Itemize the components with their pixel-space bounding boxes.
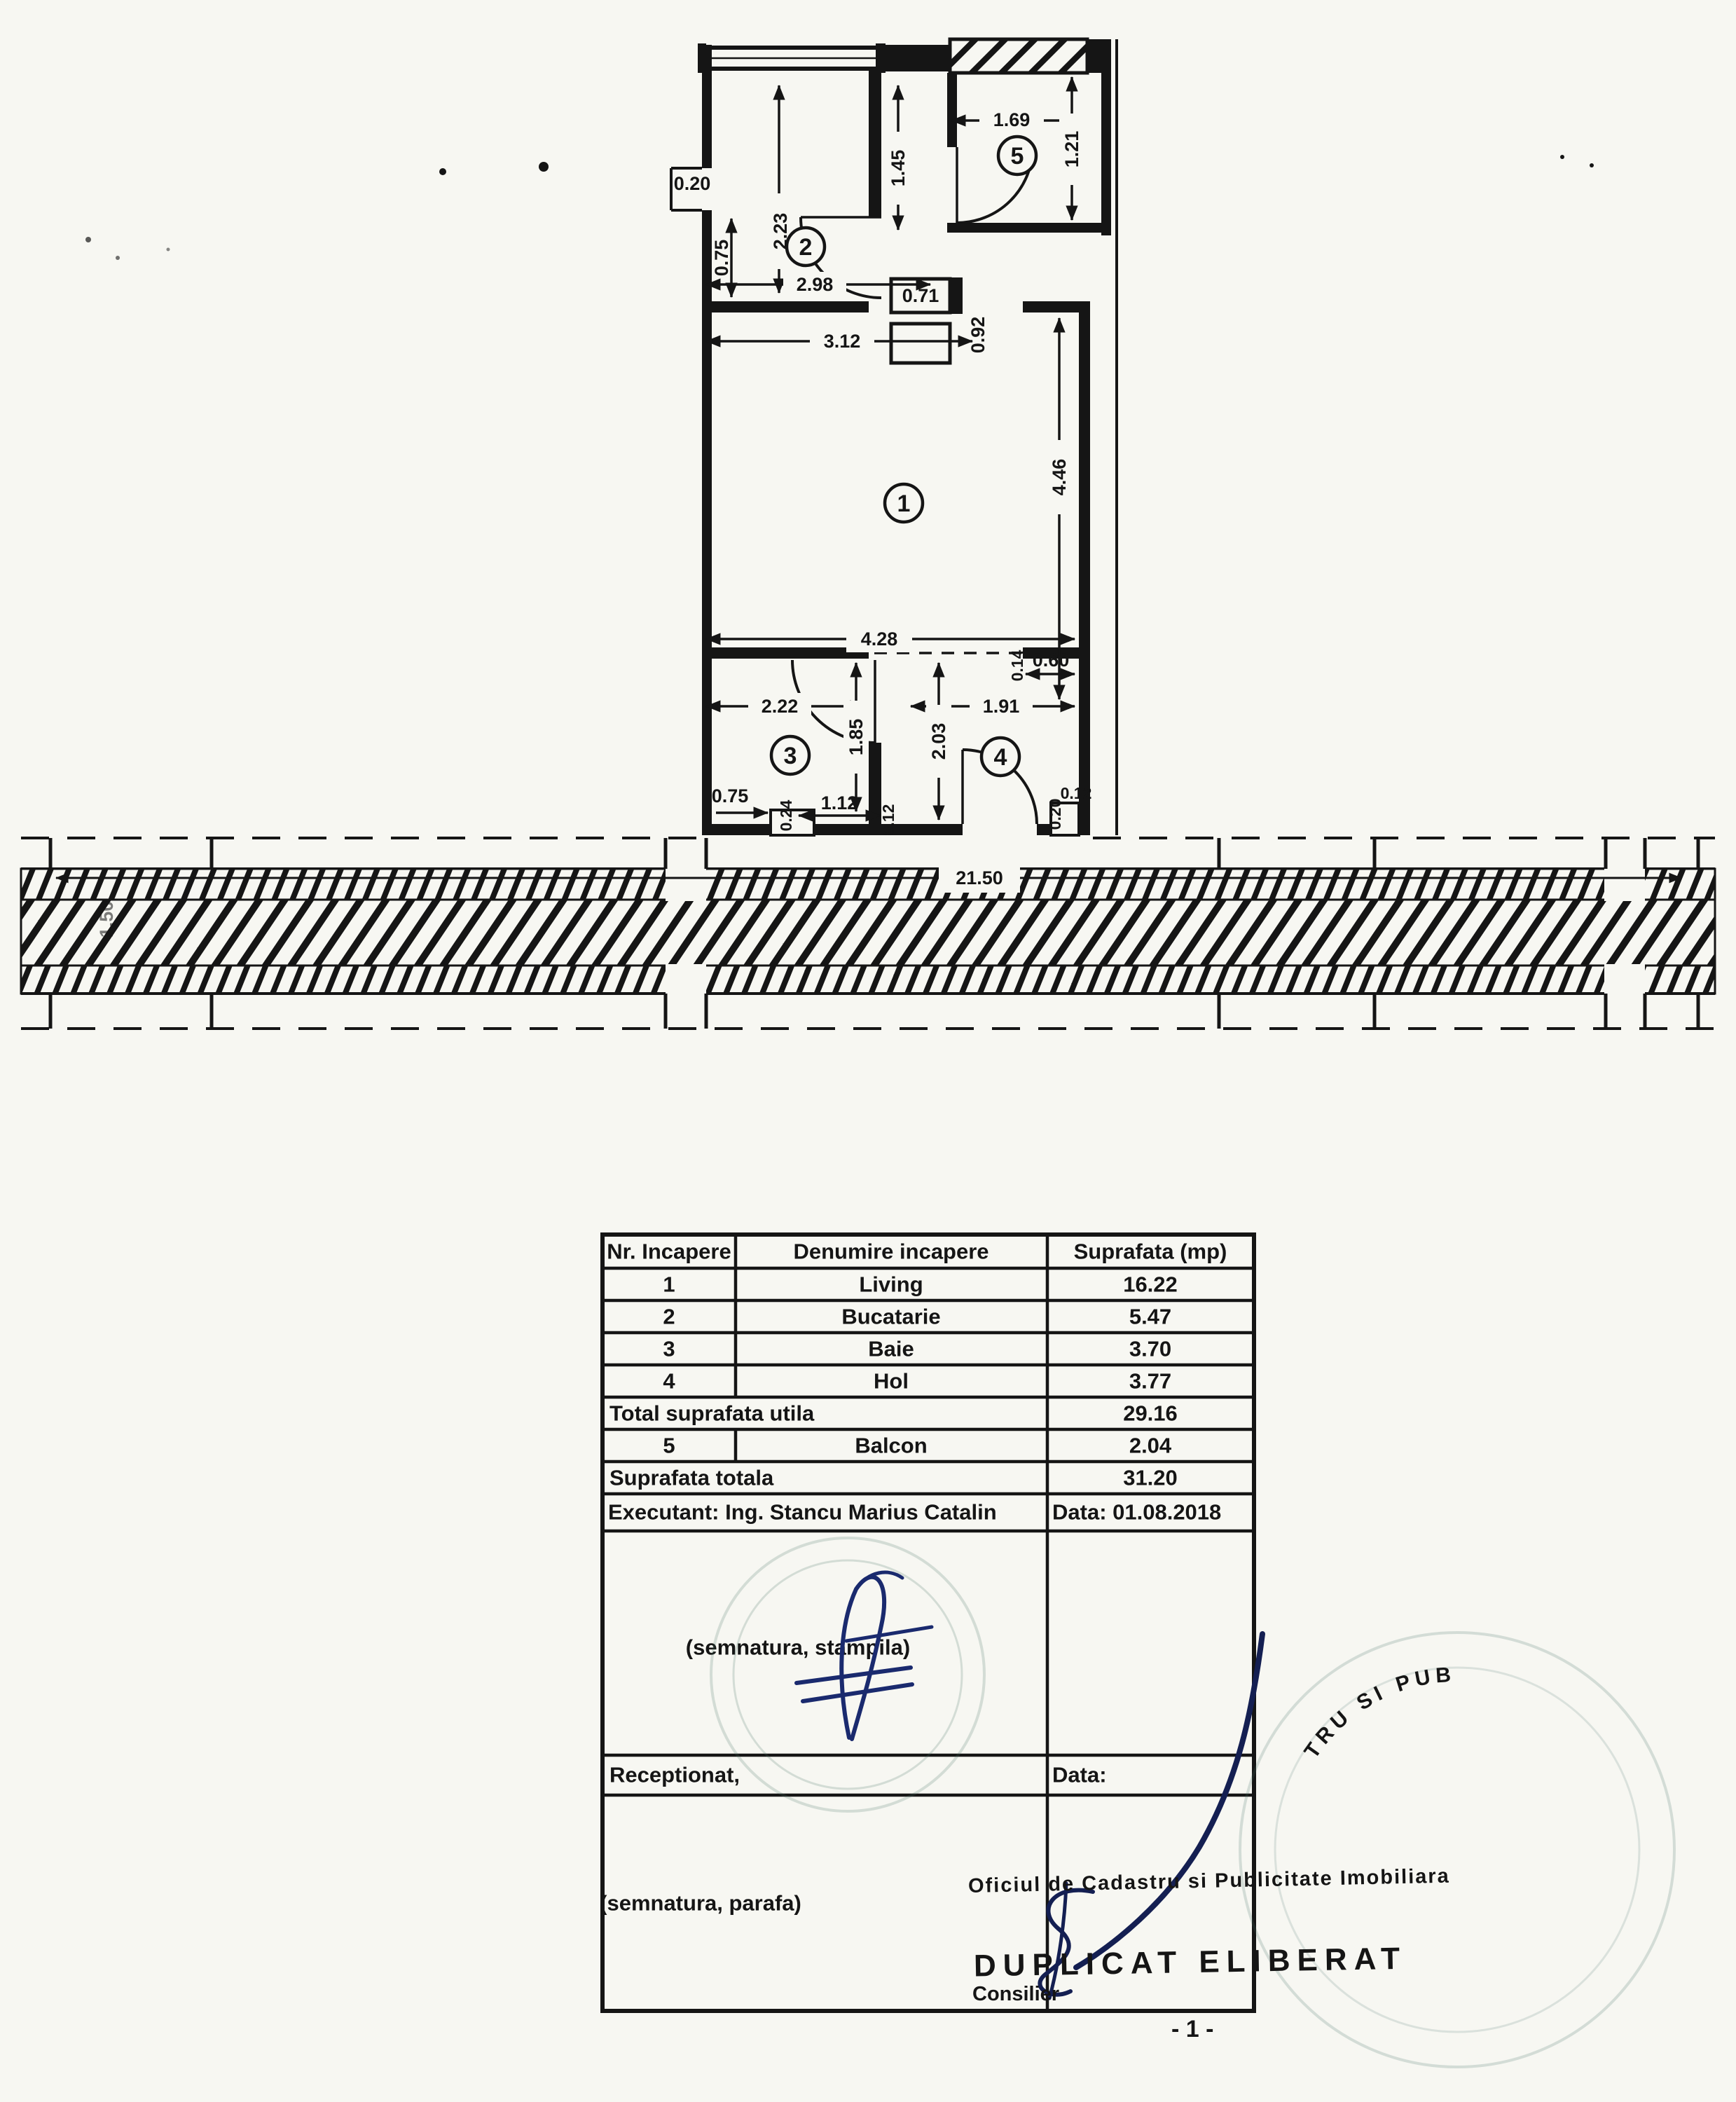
label-backgrounds [748, 107, 1084, 778]
signature-caption-2: (semnatura, parafa) [600, 1891, 801, 1916]
window-symbol [698, 43, 886, 73]
page-note-text: - 1 - [1171, 2016, 1213, 2042]
room-label-hol: 4 [981, 738, 1019, 776]
stamps-and-signatures: TRU SI PUB Oficiul de Cadastru si Public… [711, 1538, 1674, 2067]
room-label-baie: 3 [771, 736, 809, 774]
dim-step: 0.14 [1008, 650, 1026, 681]
dim-bl-a: 0.75 [712, 785, 749, 806]
total-utila-value: 29.16 [1123, 1401, 1178, 1426]
wall-balcony-bottom [947, 223, 1111, 233]
wall-left-lower [702, 301, 712, 835]
svg-text:3.77: 3.77 [1129, 1369, 1171, 1394]
wall-left-upper [702, 45, 712, 168]
dim-br-a: 0.20 [1046, 799, 1064, 830]
hatch-strip-mid [21, 900, 1715, 966]
wall-left-mid [702, 210, 712, 301]
joint-right-bottom [1604, 964, 1645, 995]
svg-text:3: 3 [663, 1337, 675, 1361]
dim-br-b: 0.12 [1061, 784, 1092, 802]
consilier-text: Consilier [972, 1983, 1059, 2005]
dim-b-width: 1.69 [993, 109, 1031, 130]
svg-text:2.04: 2.04 [1129, 1434, 1172, 1458]
dim-bl-b: 0.24 [777, 799, 795, 831]
svg-text:5: 5 [1011, 143, 1024, 170]
total-value: 31.20 [1123, 1466, 1178, 1490]
svg-text:1: 1 [663, 1272, 675, 1297]
table-row: 1 Living 16.22 [663, 1272, 1177, 1297]
hatch-strip-bottom [21, 966, 1715, 994]
table-row: 2 Bucatarie 5.47 [663, 1305, 1171, 1329]
wall-top [881, 45, 950, 71]
dim-hall-h: 1.45 [888, 150, 909, 187]
svg-text:3.70: 3.70 [1129, 1337, 1171, 1361]
signature-receptionat [1040, 1634, 1262, 1998]
jamb-box-2 [891, 324, 950, 363]
dim-baie-h: 1.85 [846, 719, 867, 756]
room-label-balcon: 5 [998, 137, 1036, 174]
corridor-section: 21.50 1.50 [21, 838, 1715, 1029]
svg-text:4: 4 [663, 1369, 675, 1394]
svg-text:Living: Living [859, 1272, 923, 1297]
joint-left-top [666, 867, 706, 901]
dim-l-height: 4.46 [1049, 459, 1070, 496]
scan-specks [85, 155, 1594, 260]
wall-balcony-right [1101, 39, 1111, 235]
svg-text:3: 3 [784, 743, 797, 769]
wall-living-top-left [702, 301, 869, 312]
wall-living-bottom-left [702, 647, 869, 659]
dim-baie-w: 2.22 [762, 696, 799, 717]
duplicat-text: DUPLICAT ELIBERAT [974, 1942, 1407, 1984]
table-row: 3 Baie 3.70 [663, 1337, 1171, 1361]
svg-text:5.47: 5.47 [1129, 1305, 1171, 1329]
dim-hol-h: 2.03 [928, 723, 949, 760]
dim-k-width: 2.98 [797, 274, 834, 295]
dim-k-left: 0.75 [711, 240, 732, 277]
dim-l-width: 4.28 [861, 628, 898, 650]
room-label-bucatarie: 2 [787, 228, 825, 266]
svg-text:Baie: Baie [868, 1337, 914, 1361]
svg-text:4: 4 [994, 744, 1007, 771]
table-row: 4 Hol 3.77 [663, 1369, 1171, 1394]
svg-text:5: 5 [663, 1434, 675, 1458]
receptionat-label: Receptionat, [609, 1763, 740, 1787]
data2-label: Data: [1052, 1763, 1107, 1787]
joint-right-top [1604, 867, 1645, 901]
svg-text:1: 1 [897, 490, 911, 517]
wall-living-right [1079, 301, 1090, 835]
svg-text:2: 2 [799, 234, 813, 261]
total-utila-label: Total suprafata utila [609, 1401, 815, 1426]
dim-b-height: 1.21 [1061, 131, 1082, 168]
date-label: Data: 01.08.2018 [1052, 1500, 1221, 1525]
wall-bottom-left [702, 824, 963, 835]
office-line-text: Oficiul de Cadastru si Publicitate Imobi… [968, 1865, 1450, 1897]
document-canvas: 0.20 0.75 2.23 1.45 2.98 0.71 0.92 1.69 … [0, 0, 1736, 2102]
balcony-parapet-hatch [950, 39, 1087, 73]
dim-corridor-length: 21.50 [956, 867, 1003, 888]
dim-hol-w: 1.91 [983, 696, 1020, 717]
svg-text:Hol: Hol [874, 1369, 909, 1394]
scanned-page: 0.20 0.75 2.23 1.45 2.98 0.71 0.92 1.69 … [0, 0, 1736, 2102]
executant-label: Executant: Ing. Stancu Marius Catalin [608, 1500, 997, 1525]
table-row: 5 Balcon 2.04 [663, 1434, 1172, 1458]
wall-kitchen-right [869, 69, 881, 217]
dim-corridor-width: 1.50 [96, 901, 117, 938]
col-header-denumire: Denumire incapere [793, 1239, 988, 1264]
svg-text:16.22: 16.22 [1123, 1272, 1178, 1297]
schedule-table: Nr. Incapere Denumire incapere Suprafata… [600, 1235, 1254, 2011]
dimension-labels: 0.20 0.75 2.23 1.45 2.98 0.71 0.92 1.69 … [674, 109, 1092, 835]
hatch-strip-top [21, 869, 1715, 900]
dim-jamb: 0.71 [902, 285, 939, 306]
total-label: Suprafata totala [609, 1466, 774, 1490]
col-header-suprafata: Suprafata (mp) [1074, 1239, 1227, 1264]
svg-text:2: 2 [663, 1305, 675, 1329]
dim-l-top: 3.12 [824, 331, 861, 352]
svg-text:Bucatarie: Bucatarie [841, 1305, 940, 1329]
col-header-nr: Nr. Incapere [607, 1239, 731, 1264]
stamp-office-round: TRU SI PUB [1240, 1633, 1674, 2067]
dim-k-notch: 0.20 [674, 173, 711, 194]
dim-balc-door: 0.92 [967, 317, 988, 354]
joint-left-bottom [666, 964, 706, 995]
dim-nib: 0.60 [1033, 650, 1070, 671]
room-label-living: 1 [885, 484, 923, 522]
svg-text:Balcon: Balcon [855, 1434, 927, 1458]
floor-plan: 0.20 0.75 2.23 1.45 2.98 0.71 0.92 1.69 … [671, 39, 1117, 835]
wall-balcony-left [947, 73, 957, 147]
dim-bl-c: 1.12 [821, 792, 858, 813]
dim-bl-d: 0.12 [879, 804, 897, 836]
